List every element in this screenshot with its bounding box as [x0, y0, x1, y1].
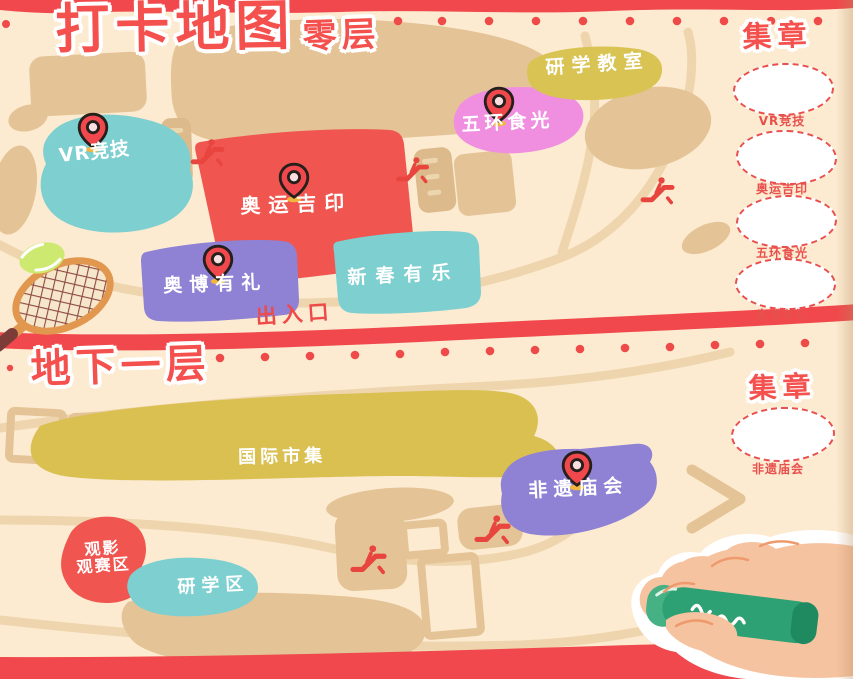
stamp-section-title-b1: 集章 [748, 372, 817, 404]
entrance-label: 出入口 [255, 301, 334, 328]
page-title: 打卡地图 [55, 0, 296, 59]
stamp-label-olympic-seal: 奥运吉印 [732, 180, 832, 197]
region-vr-arena [41, 115, 193, 233]
region-label-viewing-zone: 观影 观赛区 [58, 538, 148, 578]
stamp-label-food-court: 五环食光 [732, 244, 832, 261]
region-label-intl-market: 国际市集 [238, 447, 326, 467]
region-label-study-zone: 研学区 [177, 575, 250, 598]
floor-divider-band [0, 312, 853, 342]
page-edge-shade [836, 0, 853, 679]
stamp-section-title-floor0: 集章 [742, 20, 813, 53]
stamp-label-vr-arena: VR竞技 [732, 112, 832, 129]
region-label-museum-gift: 奥博有礼 [163, 273, 268, 297]
floor-tag: 零层 [302, 17, 381, 55]
map-illustration [0, 0, 853, 679]
basement-title: 地下一层 [30, 343, 211, 391]
stamp-label-heritage-fair: 非遗庙会 [728, 460, 828, 477]
stamp-label-museum-gift: 奥博有礼 [732, 306, 832, 323]
region-label-olympic-seal: 奥运吉印 [240, 192, 353, 217]
checkin-map-poster: 打卡地图 零层 VR竞技 奥运吉印 奥博有礼 新春有乐 五环食光 研学教室 出入… [0, 0, 853, 679]
